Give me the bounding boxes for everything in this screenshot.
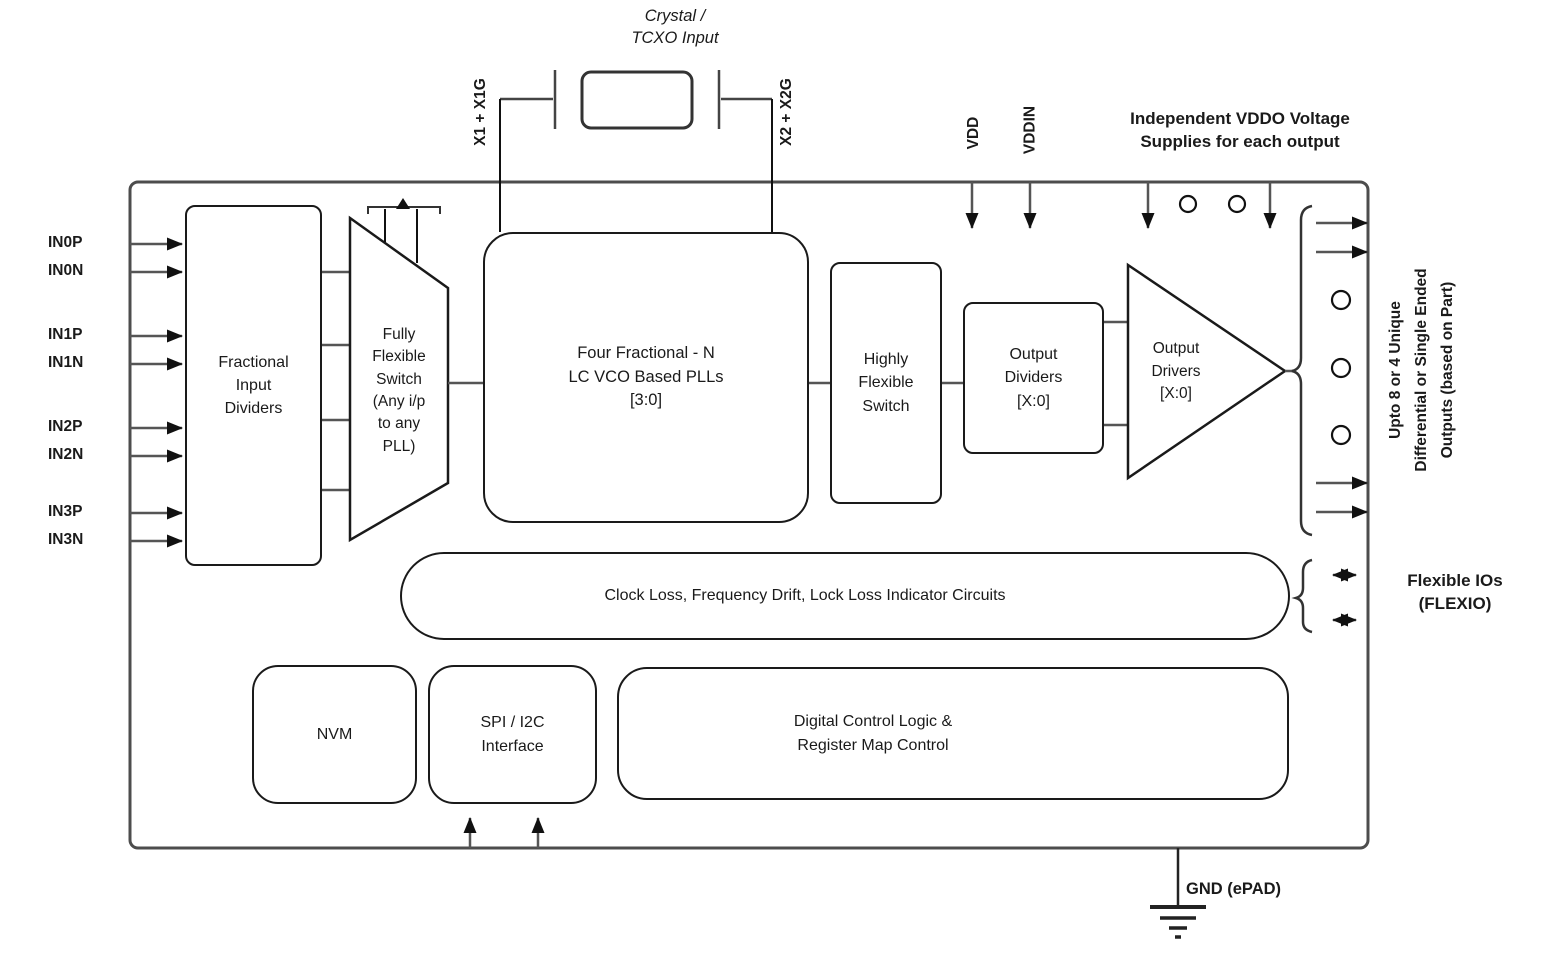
x1-pin-label: X1 + X1G <box>471 52 491 172</box>
input-pin-label-in3n: IN3N <box>48 530 83 551</box>
output-arrows <box>1316 223 1367 512</box>
divider-to-switch-wires <box>318 272 350 490</box>
crystal-label: Crystal / TCXO Input <box>580 5 770 50</box>
x2-pin-label: X2 + X2G <box>777 52 797 172</box>
input-pin-label-in2n: IN2N <box>48 445 83 466</box>
vddo-supplies-note: Independent VDDO Voltage Supplies for ea… <box>1080 108 1400 154</box>
supply-arrows <box>972 182 1270 228</box>
block-output-drivers-label: Output Drivers [X:0] <box>1128 320 1224 424</box>
block-fully-flexible-switch-label: Fully Flexible Switch (Any i/p to any PL… <box>350 296 448 486</box>
input-pin-label-in0p: IN0P <box>48 233 82 254</box>
block-nvm: NVM <box>252 665 417 804</box>
block-digital-control: Digital Control Logic & Register Map Con… <box>617 667 1289 800</box>
right-outputs-note: Upto 8 or 4 Unique Differential or Singl… <box>1383 185 1461 555</box>
flexio-arrows <box>1333 575 1356 620</box>
block-clock-loss-indicators: Clock Loss, Frequency Drift, Lock Loss I… <box>400 552 1290 640</box>
flexio-brace <box>1296 560 1312 632</box>
input-pin-label-in1n: IN1N <box>48 353 83 374</box>
block-fractional-input-dividers: Fractional Input Dividers <box>185 205 322 566</box>
block-plls: Four Fractional - N LC VCO Based PLLs [3… <box>483 232 809 523</box>
input-pin-label-in3p: IN3P <box>48 502 82 523</box>
input-pin-label-in1p: IN1P <box>48 325 82 346</box>
vddin-pin-label: VDDIN <box>1021 88 1041 173</box>
block-diagram: Crystal / TCXO Input X1 + X1G X2 + X2G V… <box>0 0 1542 963</box>
block-output-dividers: Output Dividers [X:0] <box>963 302 1104 454</box>
spi-arrows <box>470 818 538 848</box>
vdd-pin-label: VDD <box>964 98 984 168</box>
flexio-label: Flexible IOs (FLEXIO) <box>1380 570 1530 616</box>
block-highly-flexible-switch: Highly Flexible Switch <box>830 262 942 504</box>
input-pin-label-in0n: IN0N <box>48 261 83 282</box>
crystal-symbol <box>500 70 772 232</box>
outputs-brace <box>1292 206 1312 535</box>
gnd-label: GND (ePAD) <box>1186 878 1281 900</box>
input-pin-label-in2p: IN2P <box>48 417 82 438</box>
input-arrows <box>130 244 182 541</box>
block-spi-i2c-interface: SPI / I2C Interface <box>428 665 597 804</box>
